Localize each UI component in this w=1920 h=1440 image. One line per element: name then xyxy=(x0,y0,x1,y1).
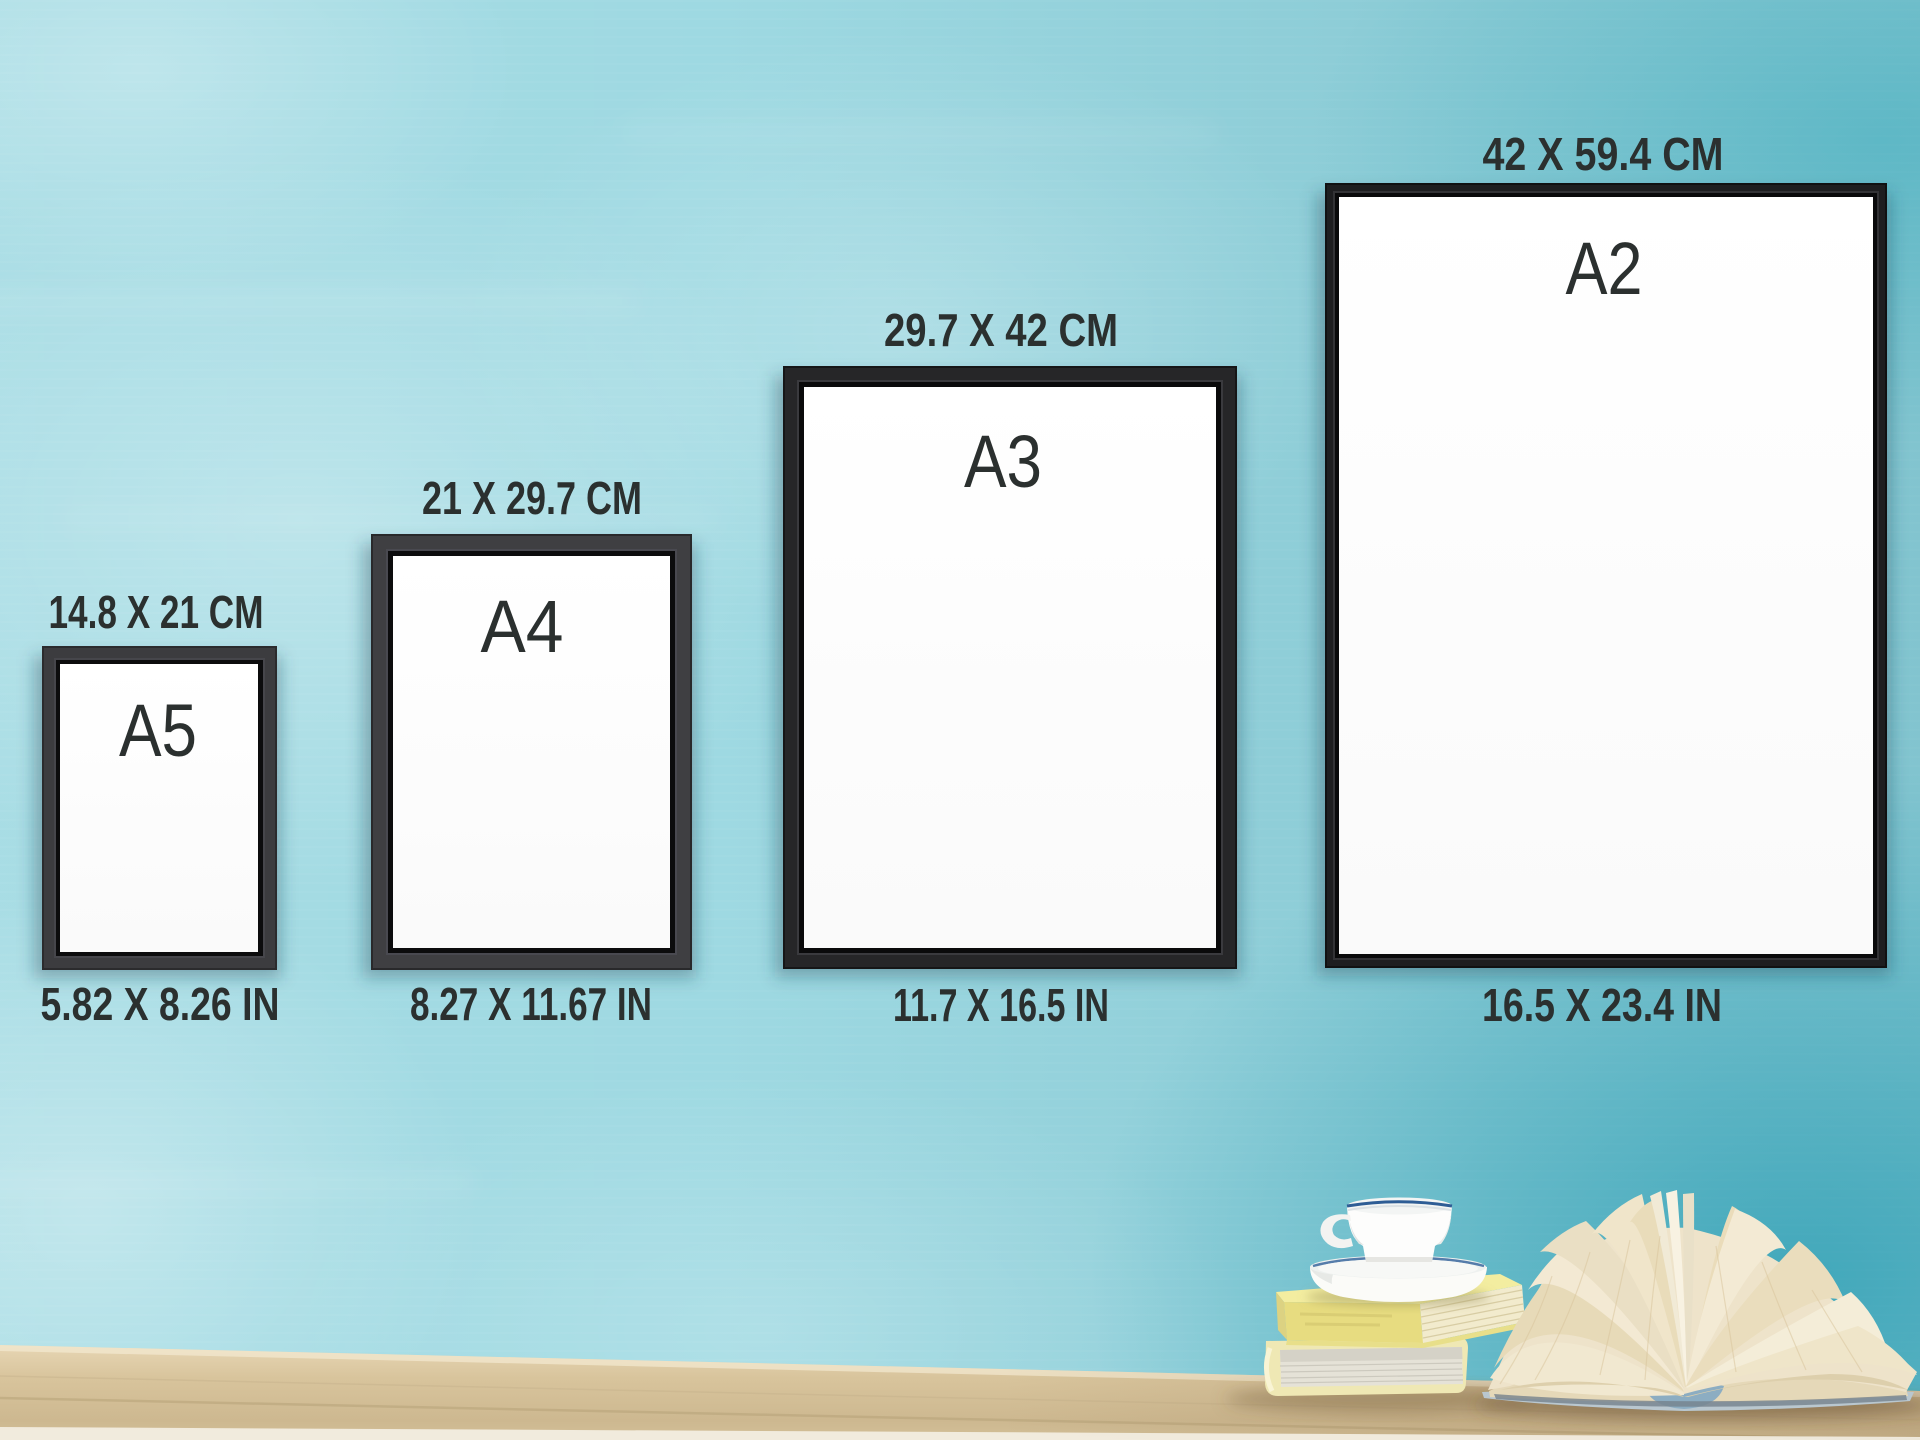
svg-text:A5: A5 xyxy=(119,689,197,772)
svg-text:21 X 29.7 CM: 21 X 29.7 CM xyxy=(422,472,642,524)
svg-text:14.8 X 21 CM: 14.8 X 21 CM xyxy=(49,586,264,638)
svg-text:8.27 X 11.67 IN: 8.27 X 11.67 IN xyxy=(410,978,652,1030)
svg-text:16.5 X 23.4 IN: 16.5 X 23.4 IN xyxy=(1482,979,1722,1031)
svg-text:5.82 X 8.26 IN: 5.82 X 8.26 IN xyxy=(41,978,280,1030)
svg-text:42 X 59.4 CM: 42 X 59.4 CM xyxy=(1483,128,1724,180)
svg-text:29.7 X 42 CM: 29.7 X 42 CM xyxy=(884,304,1118,356)
svg-text:A4: A4 xyxy=(481,585,564,668)
svg-text:A2: A2 xyxy=(1566,227,1643,310)
svg-text:A3: A3 xyxy=(964,420,1042,503)
svg-text:11.7 X 16.5 IN: 11.7 X 16.5 IN xyxy=(893,979,1109,1031)
